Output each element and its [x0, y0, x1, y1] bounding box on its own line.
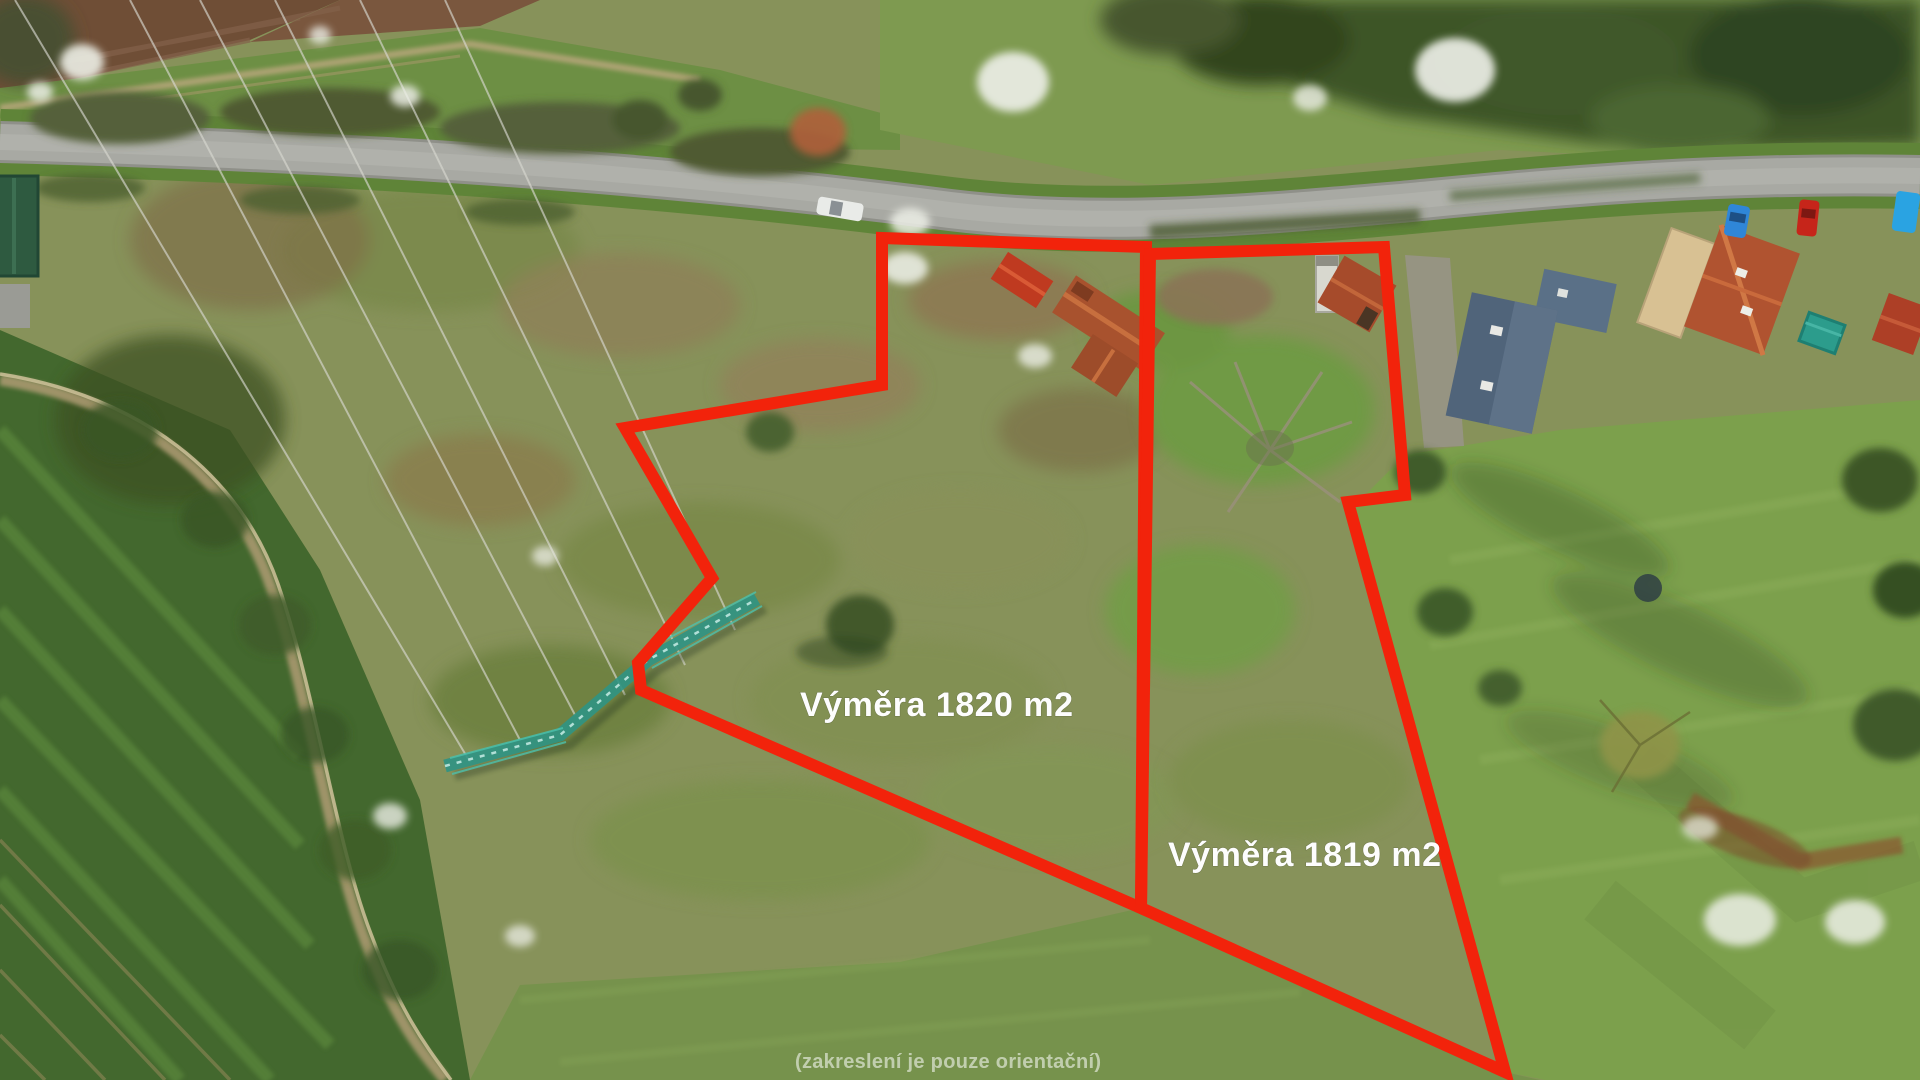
orange-soil-patch: [790, 108, 846, 156]
parcel-label-1820: Výměra 1820 m2: [800, 686, 1074, 724]
car-red: [1796, 199, 1820, 237]
listing-aerial-photo: Výměra 1820 m2 Výměra 1819 m2 (zakreslen…: [0, 0, 1920, 1080]
trampoline: [1634, 574, 1662, 602]
disclaimer-text: (zakreslení je pouze orientační): [795, 1051, 1101, 1073]
parcel-label-1819: Výměra 1819 m2: [1168, 836, 1442, 874]
aerial-photo-canvas: Výměra 1820 m2 Výměra 1819 m2 (zakreslen…: [0, 0, 1920, 1080]
ruins: [1157, 269, 1273, 325]
